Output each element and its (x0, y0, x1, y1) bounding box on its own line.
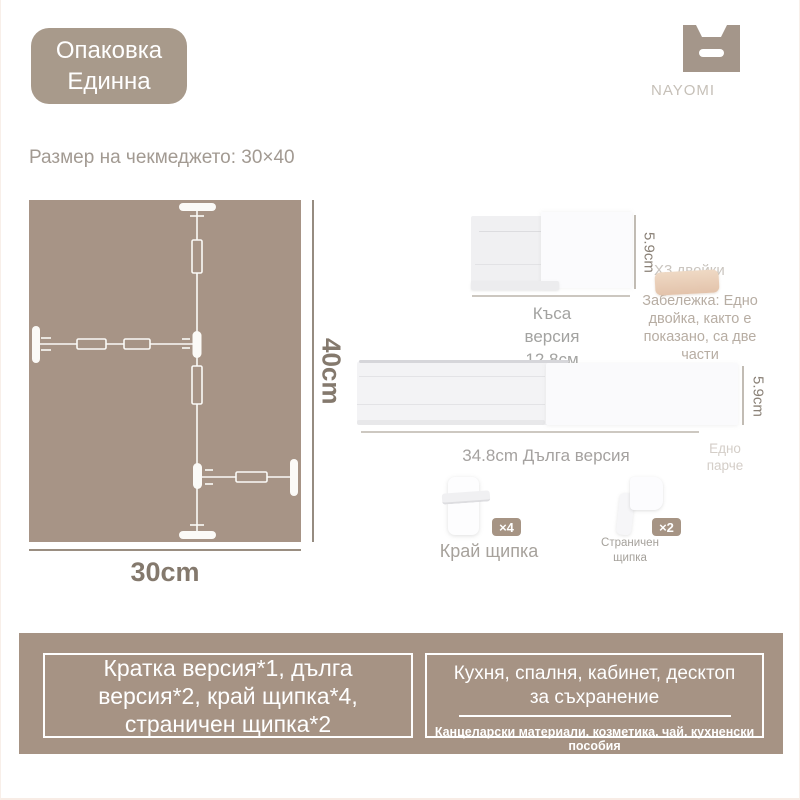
usage-title: Кухня, спалня, кабинет, десктоп за съхра… (427, 662, 762, 710)
divider-layout-drawing (29, 200, 301, 542)
package-badge-line1: Опаковка (56, 35, 162, 66)
usage-divider (459, 715, 731, 717)
one-piece-label: Едно парче (696, 440, 754, 474)
side-clip-count-badge: ×2 (652, 518, 681, 536)
usage-box: Кухня, спалня, кабинет, десктоп за съхра… (425, 653, 764, 738)
usage-title-line2: за съхранение (427, 686, 762, 710)
short-divider-extension (541, 212, 632, 288)
usage-subtitle: Канцеларски материали, козметика, чай, к… (427, 725, 762, 753)
short-divider-groove (475, 264, 545, 265)
short-length-dimension-line (472, 295, 630, 297)
drawer-logo-icon (683, 25, 740, 72)
long-divider-groove (357, 404, 545, 405)
end-clip-label: Край щипка (429, 541, 549, 562)
short-divider-body (471, 216, 547, 288)
end-clip-image (448, 477, 479, 535)
drawer-size-label: Размер на чекмеджето: 30×40 (29, 147, 295, 169)
long-divider-body (357, 361, 549, 425)
long-version-label: 34.8cm Дълга версия (391, 446, 701, 466)
side-clip-image (630, 477, 663, 510)
drawer-topview-diagram (29, 200, 301, 542)
width-dimension-label: 30cm (29, 557, 301, 588)
pair-sample-item (654, 269, 719, 295)
package-contents-line: страничен щипка*2 (125, 710, 331, 738)
short-divider-rail (471, 281, 559, 290)
long-divider-rail (357, 420, 545, 425)
product-infographic: Опаковка Единна NAYOMI Размер на чекмедж… (0, 0, 800, 800)
brand-name: NAYOMI (651, 82, 715, 99)
side-clip-label: Страничен щипка (595, 536, 665, 566)
long-length-dimension-line (361, 431, 699, 433)
short-divider-groove (479, 231, 545, 232)
end-clip-bar (442, 490, 491, 504)
long-height-label: 5.9cm (746, 358, 770, 434)
package-badge: Опаковка Единна (31, 28, 187, 104)
package-contents-line: версия*2, край щипка*4, (98, 682, 357, 710)
width-dimension-line (29, 549, 301, 551)
long-divider-extension (546, 363, 738, 425)
package-contents-box: Кратка версия*1, дълга версия*2, край щи… (43, 653, 413, 738)
height-dimension-label: 40cm (315, 200, 347, 542)
short-height-dimension-line (634, 215, 636, 289)
long-height-dimension-line (742, 366, 744, 425)
usage-title-line1: Кухня, спалня, кабинет, десктоп (427, 662, 762, 686)
height-dimension-line (312, 200, 314, 542)
pair-note-text: Забележка: Едно двойка, както е показано… (637, 292, 763, 364)
package-badge-line2: Единна (67, 66, 150, 97)
package-contents-line: Кратка версия*1, дълга (103, 654, 352, 682)
long-divider-groove (359, 376, 545, 377)
end-clip-count-badge: ×4 (492, 518, 521, 536)
long-divider-rail-edge (359, 360, 569, 363)
